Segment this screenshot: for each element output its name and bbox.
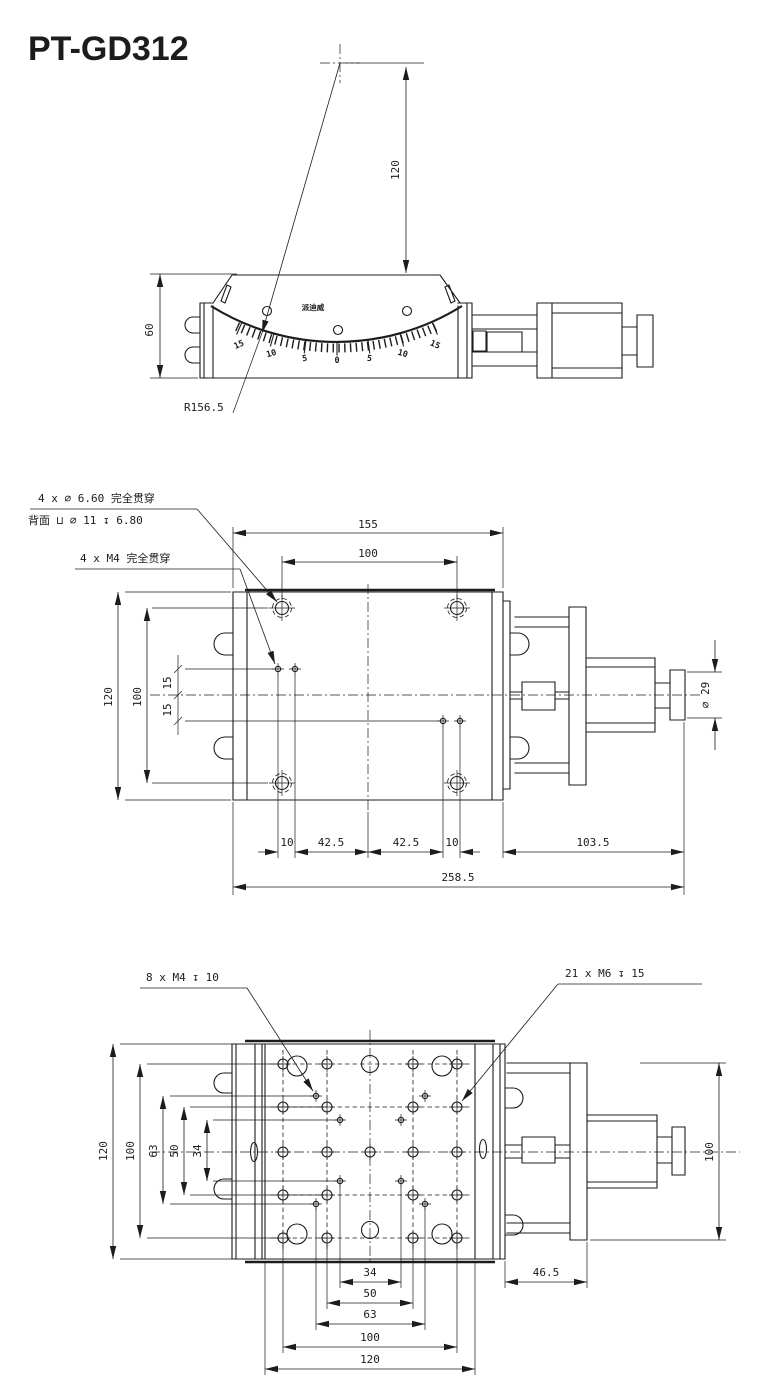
dim-15-top-label: 15: [161, 676, 174, 689]
bottom-centerlines: [150, 1030, 740, 1262]
dim-34-left-label: 34: [191, 1144, 204, 1158]
top-extension-lines: [125, 527, 722, 895]
dim-103.5-label: 103.5: [576, 836, 609, 849]
dim-100-left-label: 100: [131, 687, 144, 707]
dim-100-right-label: 100: [703, 1142, 716, 1162]
scale-label: 5: [301, 354, 307, 365]
dim-46.5-label: 46.5: [533, 1266, 560, 1279]
callout-cbore-leader: [197, 509, 277, 602]
drawing-sheet: PT-GD312 15 10 5 0 5 10 15 派迪威 120 60 R1…: [0, 0, 770, 1400]
callout-m6: 21 x M6 ↧ 15: [565, 967, 644, 980]
dim-42.5-label: 42.5: [318, 836, 345, 849]
dim-100-top-label: 100: [358, 547, 378, 560]
base-plate-outline: [214, 592, 529, 800]
dim-34-bottom-label: 34: [363, 1266, 377, 1279]
front-view: 15 10 5 0 5 10 15 派迪威 120 60 R156.5: [143, 44, 653, 414]
top-actuator-outline: [510, 607, 685, 785]
scale-label: 10: [265, 348, 278, 360]
callout-m6-leader: [462, 984, 558, 1101]
scale-label: 5: [366, 354, 372, 365]
m4-hole: [395, 1114, 407, 1126]
m4-hole: [289, 663, 301, 675]
dim-dia29-label: ⌀ 29: [699, 682, 712, 709]
dim-100-left-label: 100: [124, 1141, 137, 1161]
side-pin: [480, 1140, 487, 1159]
dim-15-bottom-label: 15: [161, 703, 174, 716]
callout-m4-leader: [240, 569, 275, 664]
scale-label: 10: [396, 348, 409, 360]
dim-63-bottom-label: 63: [363, 1308, 376, 1321]
scale-label: 15: [428, 339, 441, 352]
front-extension-lines: [150, 63, 424, 378]
callout-m4: 4 x M4 完全贯穿: [80, 551, 170, 565]
radius-leader-arrow: [262, 63, 340, 333]
front-actuator-outline: [472, 303, 653, 378]
callout-cbore-line2: 背面 ⊔ ⌀ 11 ↧ 6.80: [28, 513, 143, 527]
platform-hole: [263, 307, 272, 316]
m4-hole: [454, 715, 466, 727]
callout-m4: 8 x M4 ↧ 10: [146, 971, 219, 984]
top-view: 155 100 120 100 15 15 10 42.5 42.5 10 10…: [28, 491, 722, 895]
bottom-view: 120 100 63 50 34 34 50 63 100 120 46.5 1…: [97, 967, 740, 1375]
dim-10-label: 10: [445, 836, 458, 849]
scale-label: 15: [232, 339, 245, 352]
bottom-actuator-outline: [505, 1063, 685, 1240]
counterbore-hole: [444, 770, 470, 796]
platform-hole: [403, 307, 412, 316]
dim-120-left-label: 120: [97, 1141, 110, 1161]
callout-underlines: [140, 984, 702, 988]
dim-50-left-label: 50: [168, 1144, 181, 1157]
platform-hole: [334, 326, 343, 335]
scale-arc: [211, 306, 462, 342]
dim-63-left-label: 63: [147, 1144, 160, 1157]
callout-cbore-line1: 4 x ⌀ 6.60 完全贯穿: [38, 491, 155, 505]
dim-155-label: 155: [358, 518, 378, 531]
page-title: PT-GD312: [28, 30, 189, 68]
dim-60-label: 60: [143, 323, 156, 336]
callout-m4-leader: [247, 988, 313, 1091]
scale-label: 0: [334, 356, 339, 366]
dim-10-label: 10: [280, 836, 293, 849]
through-hole: [432, 1224, 452, 1244]
m4-hole: [419, 1090, 431, 1102]
dim-120-label: 120: [102, 687, 115, 707]
dim-120-bottom-label: 120: [360, 1353, 380, 1366]
dim-258.5-label: 258.5: [441, 871, 474, 884]
brand-mark: 派迪威: [302, 302, 325, 312]
radius-label: R156.5: [184, 401, 224, 414]
dim-100-bottom-label: 100: [360, 1331, 380, 1344]
dim-42.5-label: 42.5: [393, 836, 420, 849]
counterbore-hole: [269, 770, 295, 796]
through-hole: [432, 1056, 452, 1076]
technical-drawing: PT-GD312 15 10 5 0 5 10 15 派迪威 120 60 R1…: [0, 0, 770, 1400]
table-plate-outline: [214, 1044, 523, 1259]
through-hole: [287, 1224, 307, 1244]
dim-120-label: 120: [389, 160, 402, 180]
dim-50-bottom-label: 50: [363, 1287, 376, 1300]
